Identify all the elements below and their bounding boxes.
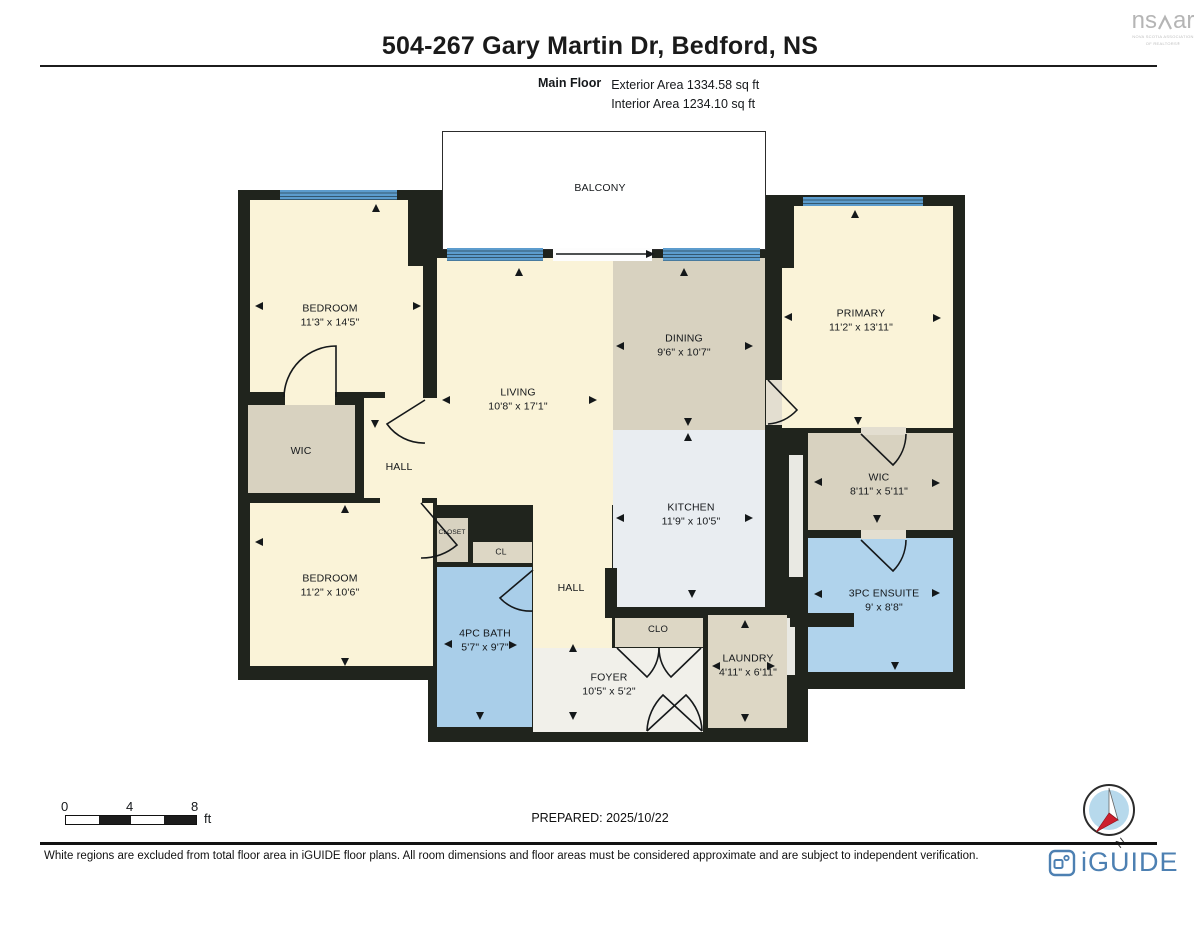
interior-area: Interior Area 1234.10 sq ft: [611, 95, 759, 114]
dimension-arrow-icon: [616, 342, 624, 350]
dimension-arrow-icon: [372, 204, 380, 212]
wall-hall-kitchen: [605, 568, 617, 618]
floor-label: Main Floor: [538, 76, 601, 114]
room-closet: [437, 518, 468, 562]
prepared-date: PREPARED: 2025/10/22: [0, 811, 1200, 825]
dimension-arrow-icon: [413, 302, 421, 310]
dimension-arrow-icon: [741, 714, 749, 722]
window-living: [447, 248, 543, 261]
kitchen-side-strip: [789, 455, 803, 577]
dimension-arrow-icon: [891, 662, 899, 670]
nsar-roof-icon: [1157, 12, 1173, 32]
room-label-kitchen: KITCHEN11'9" x 10'5": [662, 501, 721, 528]
dimension-arrow-icon: [745, 342, 753, 350]
iguide-camera-icon: [1048, 849, 1076, 877]
dimension-arrow-icon: [684, 433, 692, 441]
dimension-arrow-icon: [616, 514, 624, 522]
room-hall-lower: [533, 498, 612, 648]
room-label-primary: PRIMARY11'2" x 13'11": [829, 307, 893, 334]
dimension-arrow-icon: [341, 658, 349, 666]
room-label-laundry: LAUNDRY4'11" x 6'11": [719, 652, 777, 679]
dimension-arrow-icon: [476, 712, 484, 720]
nsar-text-left: ns: [1132, 10, 1157, 32]
dimension-arrow-icon: [851, 210, 859, 218]
dimension-arrow-icon: [814, 478, 822, 486]
dimension-arrow-icon: [932, 589, 940, 597]
dimension-arrow-icon: [741, 620, 749, 628]
dimension-arrow-icon: [745, 514, 753, 522]
header-divider: [40, 65, 1157, 67]
footer-disclaimer: White regions are excluded from total fl…: [44, 850, 979, 862]
window-bedroom1: [280, 190, 397, 200]
dimension-arrow-icon: [569, 644, 577, 652]
dimension-arrow-icon: [589, 396, 597, 404]
room-hall-upper: [364, 398, 438, 498]
dimension-arrow-icon: [371, 420, 379, 428]
nsar-text-right: ar: [1173, 10, 1194, 32]
door-opening-wic-ensuite: [861, 530, 906, 539]
room-label-cl: CL: [495, 546, 506, 557]
room-bedroom-1: [250, 200, 408, 268]
door-opening-dining-primary: [766, 380, 782, 425]
dimension-arrow-icon: [444, 640, 452, 648]
dimension-arrow-icon: [933, 314, 941, 322]
window-primary: [803, 197, 923, 206]
door-opening-primary-wic: [861, 427, 906, 435]
dimension-arrow-icon: [255, 302, 263, 310]
room-primary-b: [782, 268, 953, 428]
dimension-arrow-icon: [814, 590, 822, 598]
room-label-ensuite: 3PC ENSUITE9' x 8'8": [849, 587, 920, 614]
dimension-arrow-icon: [442, 396, 450, 404]
iguide-logo: iGUIDE: [1048, 847, 1179, 878]
room-label-hall-lower: HALL: [558, 582, 585, 596]
dimension-arrow-icon: [515, 268, 523, 276]
dimension-arrow-icon: [255, 538, 263, 546]
window-dining: [663, 248, 760, 261]
room-label-wic-left: WIC: [291, 445, 312, 459]
floorplan-page: { "header": { "title": "504-267 Gary Mar…: [0, 0, 1200, 927]
dimension-arrow-icon: [854, 417, 862, 425]
dimension-arrow-icon: [784, 313, 792, 321]
dimension-arrow-icon: [688, 590, 696, 598]
sliding-door-balcony: [553, 248, 652, 261]
dimension-arrow-icon: [873, 515, 881, 523]
dimension-arrow-icon: [569, 712, 577, 720]
room-label-wic-right: WIC8'11" x 5'11": [850, 471, 908, 498]
room-label-living: LIVING10'8" x 17'1": [488, 386, 548, 413]
room-label-clo: CLO: [648, 624, 668, 636]
room-label-bedroom-1: BEDROOM11'3" x 14'5": [301, 302, 360, 329]
nsar-logo: ns ar NOVA SCOTIA ASSOCIATION OF REALTOR…: [1128, 10, 1198, 46]
room-label-bath: 4PC BATH5'7" x 9'7": [459, 627, 511, 654]
room-label-foyer: FOYER10'5" x 5'2": [582, 671, 636, 698]
dimension-arrow-icon: [932, 479, 940, 487]
room-label-balcony: BALCONY: [574, 182, 625, 196]
exterior-area: Exterior Area 1334.58 sq ft: [611, 76, 759, 95]
floor-summary: Main Floor Exterior Area 1334.58 sq ft I…: [538, 76, 759, 114]
room-label-closet: CLOSET: [439, 529, 466, 537]
footer-divider: [40, 842, 1157, 845]
iguide-wordmark: iGUIDE: [1081, 847, 1179, 878]
nsar-caption-1: NOVA SCOTIA ASSOCIATION: [1128, 34, 1198, 39]
page-title: 504-267 Gary Martin Dr, Bedford, NS: [0, 32, 1200, 61]
room-living: [437, 258, 613, 505]
room-label-dining: DINING9'6" x 10'7": [657, 332, 711, 359]
nsar-caption-2: OF REALTORS®: [1128, 41, 1198, 46]
room-primary: [794, 206, 953, 268]
room-label-hall-upper: HALL: [386, 461, 413, 475]
room-label-bedroom-2: BEDROOM11'2" x 10'6": [301, 572, 360, 599]
dimension-arrow-icon: [341, 505, 349, 513]
door-opening-bedroom1-wic: [285, 392, 335, 406]
wall-ensuite-stub: [790, 613, 854, 627]
dimension-arrow-icon: [680, 268, 688, 276]
dimension-arrow-icon: [684, 418, 692, 426]
